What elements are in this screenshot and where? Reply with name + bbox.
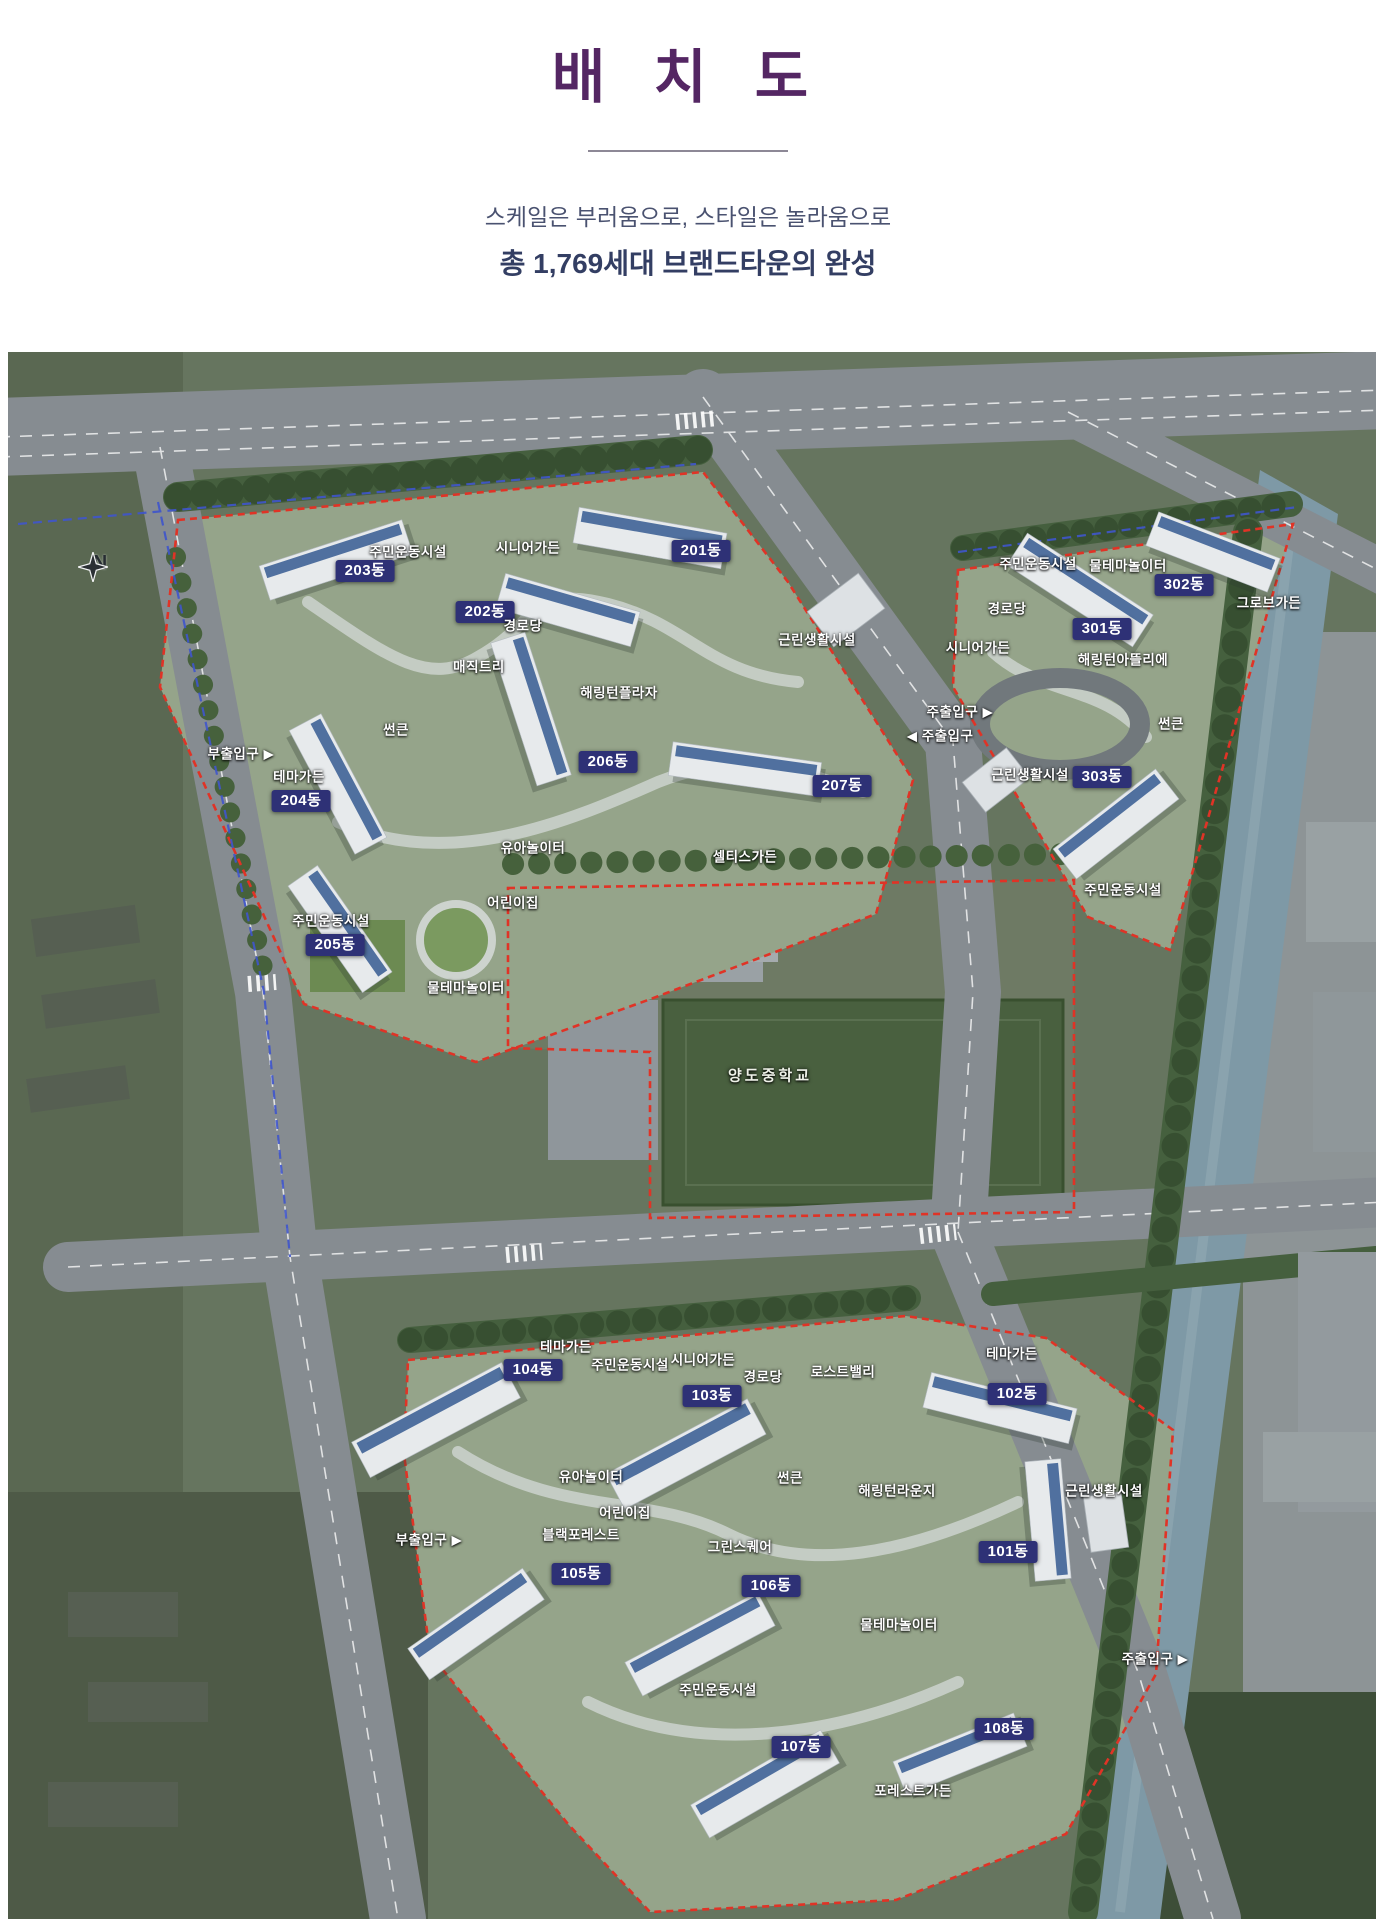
- map-label-place: 해링턴라운지: [858, 1484, 936, 1498]
- map-label-place: 물테마놀이터: [1089, 559, 1167, 573]
- map-label-place: 시니어가든: [671, 1353, 736, 1367]
- map-label-place: 시니어가든: [946, 641, 1011, 655]
- map-labels: 주민운동시설203동시니어가든201동202동경로당매직트리해링턴플라자근린생활…: [8, 352, 1376, 1919]
- map-label-dong: 104동: [504, 1359, 563, 1381]
- map-label-place: 물테마놀이터: [427, 981, 505, 995]
- map-label-place: 테마가든: [986, 1347, 1038, 1361]
- map-label-place: 주민운동시설: [999, 557, 1077, 571]
- subtitle-line1: 스케일은 부러움으로, 스타일은 놀라움으로: [0, 198, 1376, 232]
- map-label-dong: 101동: [979, 1541, 1038, 1563]
- map-label-dong: 102동: [988, 1383, 1047, 1405]
- map-label-place: 주민운동시설: [679, 1683, 757, 1697]
- map-label-place: 로스트밸리: [811, 1365, 876, 1379]
- map-label-dong: 206동: [579, 751, 638, 773]
- map-label-dong: 103동: [683, 1385, 742, 1407]
- map-label-place: 유아놀이터: [559, 1470, 624, 1484]
- map-label-dong: 303동: [1073, 766, 1132, 788]
- map-label-place: 유아놀이터: [501, 841, 566, 855]
- map-label-place: 테마가든: [273, 770, 325, 784]
- map-label-place: 근린생활시설: [778, 633, 856, 647]
- map-label-school: 양도중학교: [728, 1069, 812, 1084]
- map-label-place: 경로당: [988, 602, 1027, 616]
- map-label-place: 근린생활시설: [991, 768, 1069, 782]
- map-label-place: 주민운동시설: [1084, 883, 1162, 897]
- map-label-place: 해링턴플라자: [580, 686, 658, 700]
- map-label-entrance: 부출입구 ▶: [208, 747, 275, 761]
- map-label-place: 해링턴아뜰리에: [1078, 653, 1168, 667]
- map-label-place: 시니어가든: [496, 541, 561, 555]
- page-title: 배 치 도: [0, 30, 1376, 114]
- map-label-place: 주민운동시설: [292, 914, 370, 928]
- map-label-entrance: 부출입구 ▶: [396, 1533, 463, 1547]
- map-label-dong: 201동: [672, 540, 731, 562]
- subtitle-line2: 총 1,769세대 브랜드타운의 완성: [0, 242, 1376, 282]
- map-label-place: 썬큰: [777, 1471, 803, 1485]
- map-label-place: 어린이집: [599, 1506, 651, 1520]
- map-label-dong: 301동: [1073, 618, 1132, 640]
- map-label-dong: 107동: [772, 1736, 831, 1758]
- site-plan-map: N 주민운동시설203동시니어가든201동202동경로당매직트리해링턴플라자근린…: [8, 352, 1376, 1919]
- map-label-entrance: 주출입구 ▶: [927, 705, 994, 719]
- map-label-dong: 205동: [306, 934, 365, 956]
- map-label-dong: 106동: [742, 1575, 801, 1597]
- map-label-dong: 105동: [552, 1563, 611, 1585]
- map-label-entrance: ◀ 주출입구: [907, 729, 974, 743]
- map-label-entrance: 주출입구 ▶: [1122, 1652, 1189, 1666]
- map-label-place: 포레스트가든: [874, 1784, 952, 1798]
- map-label-place: 썬큰: [1158, 717, 1184, 731]
- map-label-place: 근린생활시설: [1065, 1484, 1143, 1498]
- map-label-dong: 108동: [975, 1718, 1034, 1740]
- map-label-place: 그로브가든: [1237, 596, 1302, 610]
- map-label-place: 물테마놀이터: [860, 1618, 938, 1632]
- title-divider: [588, 150, 788, 152]
- map-label-dong: 203동: [336, 560, 395, 582]
- map-label-place: 셀티스가든: [713, 850, 778, 864]
- hero-section: 배 치 도 스케일은 부러움으로, 스타일은 놀라움으로 총 1,769세대 브…: [0, 0, 1376, 352]
- map-label-place: 매직트리: [453, 660, 505, 674]
- map-label-place: 경로당: [504, 619, 543, 633]
- map-label-place: 썬큰: [383, 723, 409, 737]
- map-label-place: 블랙포레스트: [542, 1528, 620, 1542]
- map-label-place: 어린이집: [487, 896, 539, 910]
- map-label-place: 주민운동시설: [591, 1358, 669, 1372]
- map-label-dong: 204동: [272, 790, 331, 812]
- map-label-dong: 207동: [813, 775, 872, 797]
- map-label-place: 테마가든: [540, 1340, 592, 1354]
- map-label-place: 그린스퀘어: [708, 1540, 773, 1554]
- map-label-place: 주민운동시설: [369, 545, 447, 559]
- map-label-place: 경로당: [744, 1370, 783, 1384]
- map-label-dong: 302동: [1155, 574, 1214, 596]
